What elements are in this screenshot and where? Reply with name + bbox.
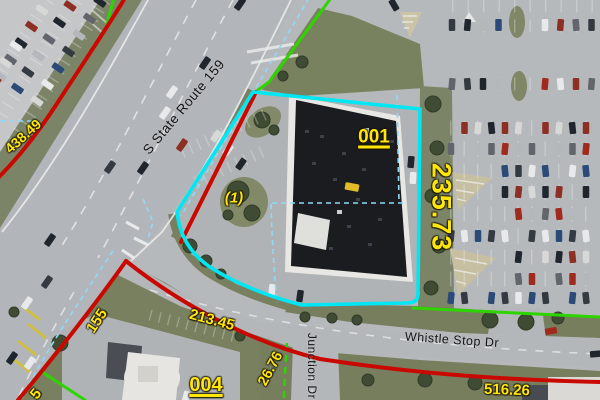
parcel-label-001: 001 — [358, 128, 390, 147]
sub-parcel-label-1: (1) — [225, 191, 243, 206]
aerial-imagery — [0, 0, 600, 400]
road-label-junction-dr: Junction Dr — [306, 333, 318, 399]
parcel-label-004: 004 — [189, 375, 222, 395]
dimension-label-235-73: 235.73 — [428, 163, 455, 252]
aerial-map-view[interactable]: S State Route 159 Whistle Stop Dr Juncti… — [0, 0, 600, 400]
dimension-label-516-26: 516.26 — [484, 382, 530, 399]
